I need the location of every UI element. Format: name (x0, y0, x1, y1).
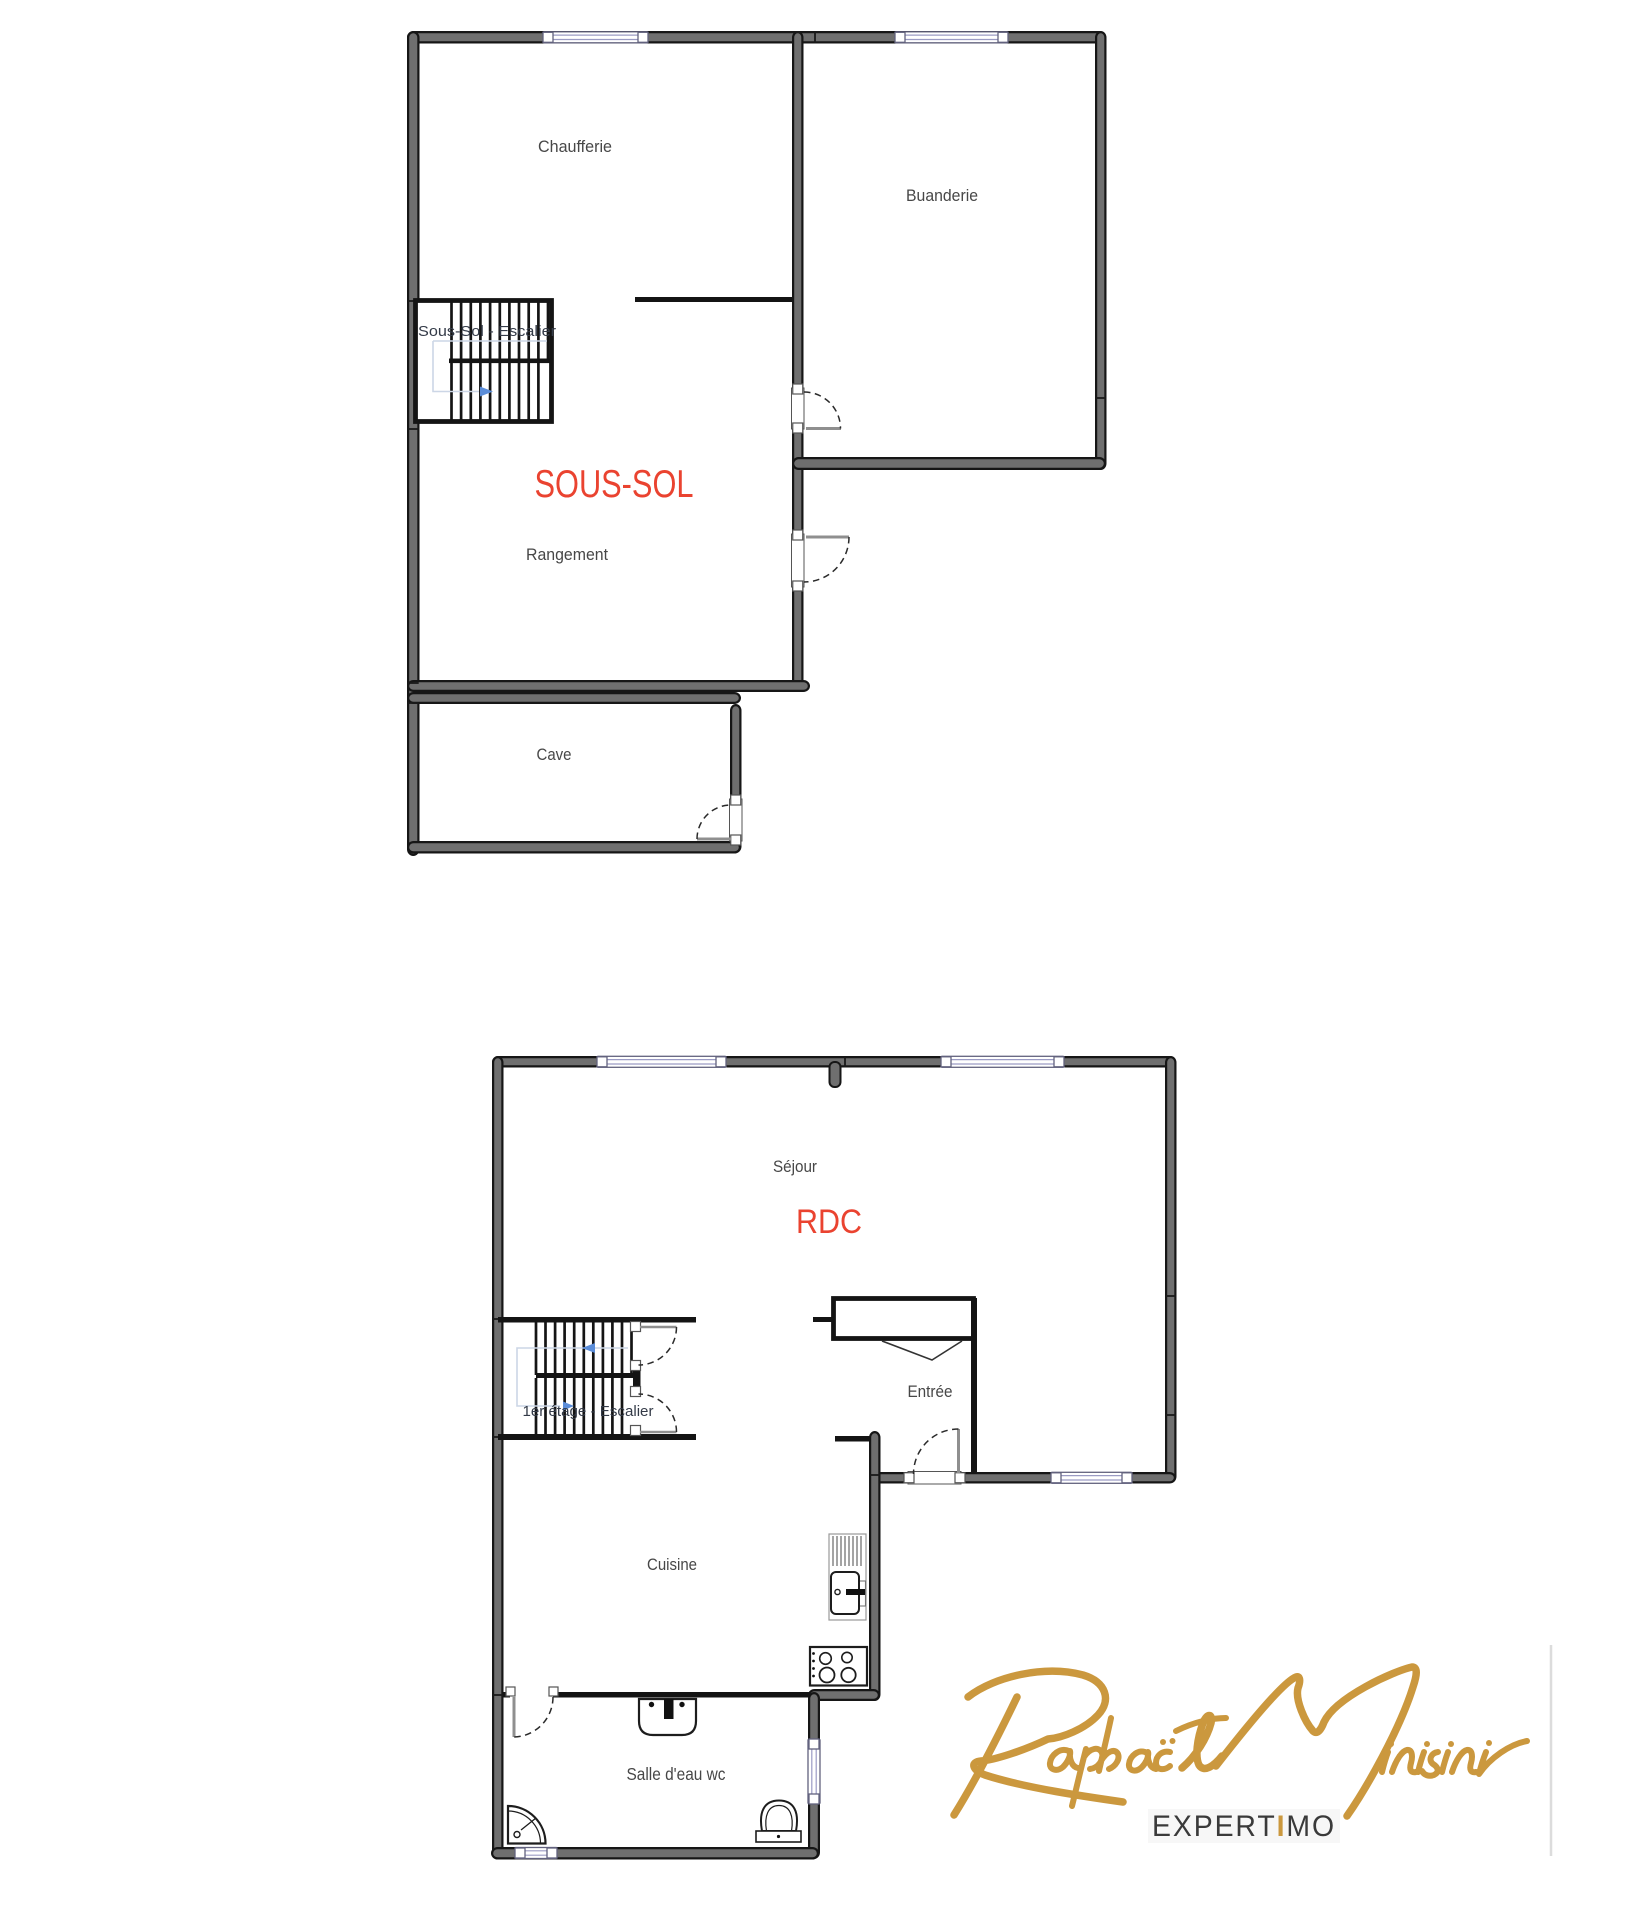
svg-text:Chaufferie: Chaufferie (538, 137, 612, 156)
svg-text:1er étage - Escalier: 1er étage - Escalier (523, 1403, 654, 1420)
svg-text:Cave: Cave (537, 745, 572, 764)
svg-text:EXPERTIMO: EXPERTIMO (1152, 1810, 1336, 1843)
svg-text:Buanderie: Buanderie (906, 186, 978, 205)
svg-text:Cuisine: Cuisine (647, 1555, 697, 1574)
svg-text:Sous-Sol - Escalier: Sous-Sol - Escalier (418, 323, 556, 340)
svg-text:Rangement: Rangement (526, 545, 608, 564)
svg-text:Salle d'eau wc: Salle d'eau wc (627, 1764, 726, 1784)
svg-text:Séjour: Séjour (773, 1157, 817, 1176)
svg-text:SOUS-SOL: SOUS-SOL (535, 463, 694, 506)
svg-text:RDC: RDC (796, 1203, 862, 1241)
svg-text:Entrée: Entrée (908, 1382, 953, 1401)
